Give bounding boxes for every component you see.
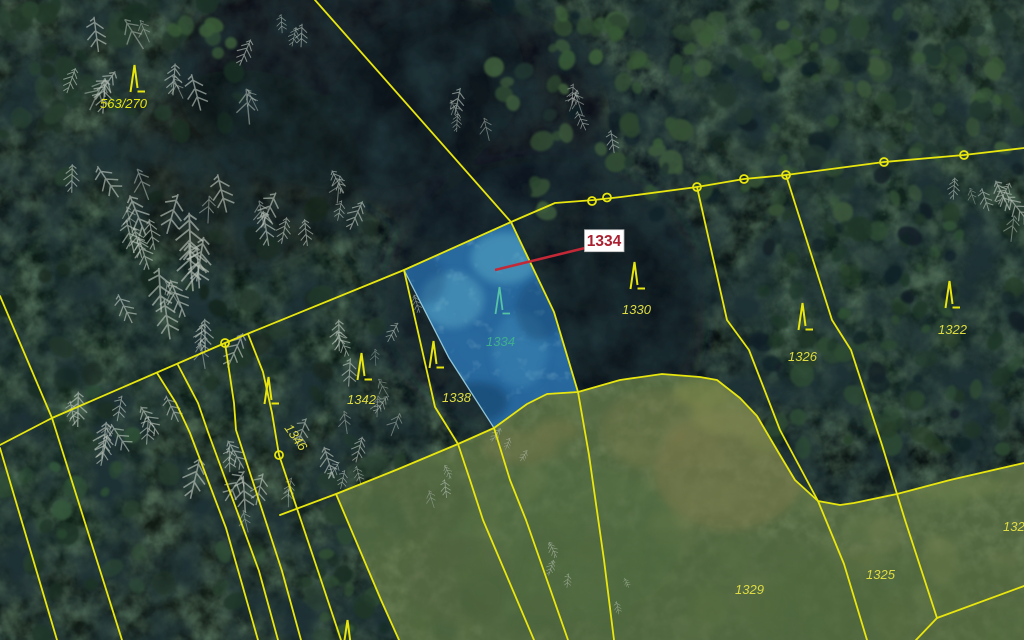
- svg-text:1326: 1326: [788, 349, 818, 364]
- svg-text:1330: 1330: [622, 302, 652, 317]
- svg-text:1325: 1325: [866, 567, 896, 582]
- svg-text:1329: 1329: [735, 582, 764, 597]
- svg-text:1321: 1321: [1003, 519, 1024, 534]
- svg-text:1338: 1338: [442, 390, 472, 405]
- svg-text:1334: 1334: [587, 233, 622, 250]
- svg-text:563/270: 563/270: [100, 96, 148, 111]
- svg-text:1322: 1322: [938, 322, 968, 337]
- svg-text:1334: 1334: [486, 334, 515, 349]
- svg-text:1342: 1342: [347, 392, 377, 407]
